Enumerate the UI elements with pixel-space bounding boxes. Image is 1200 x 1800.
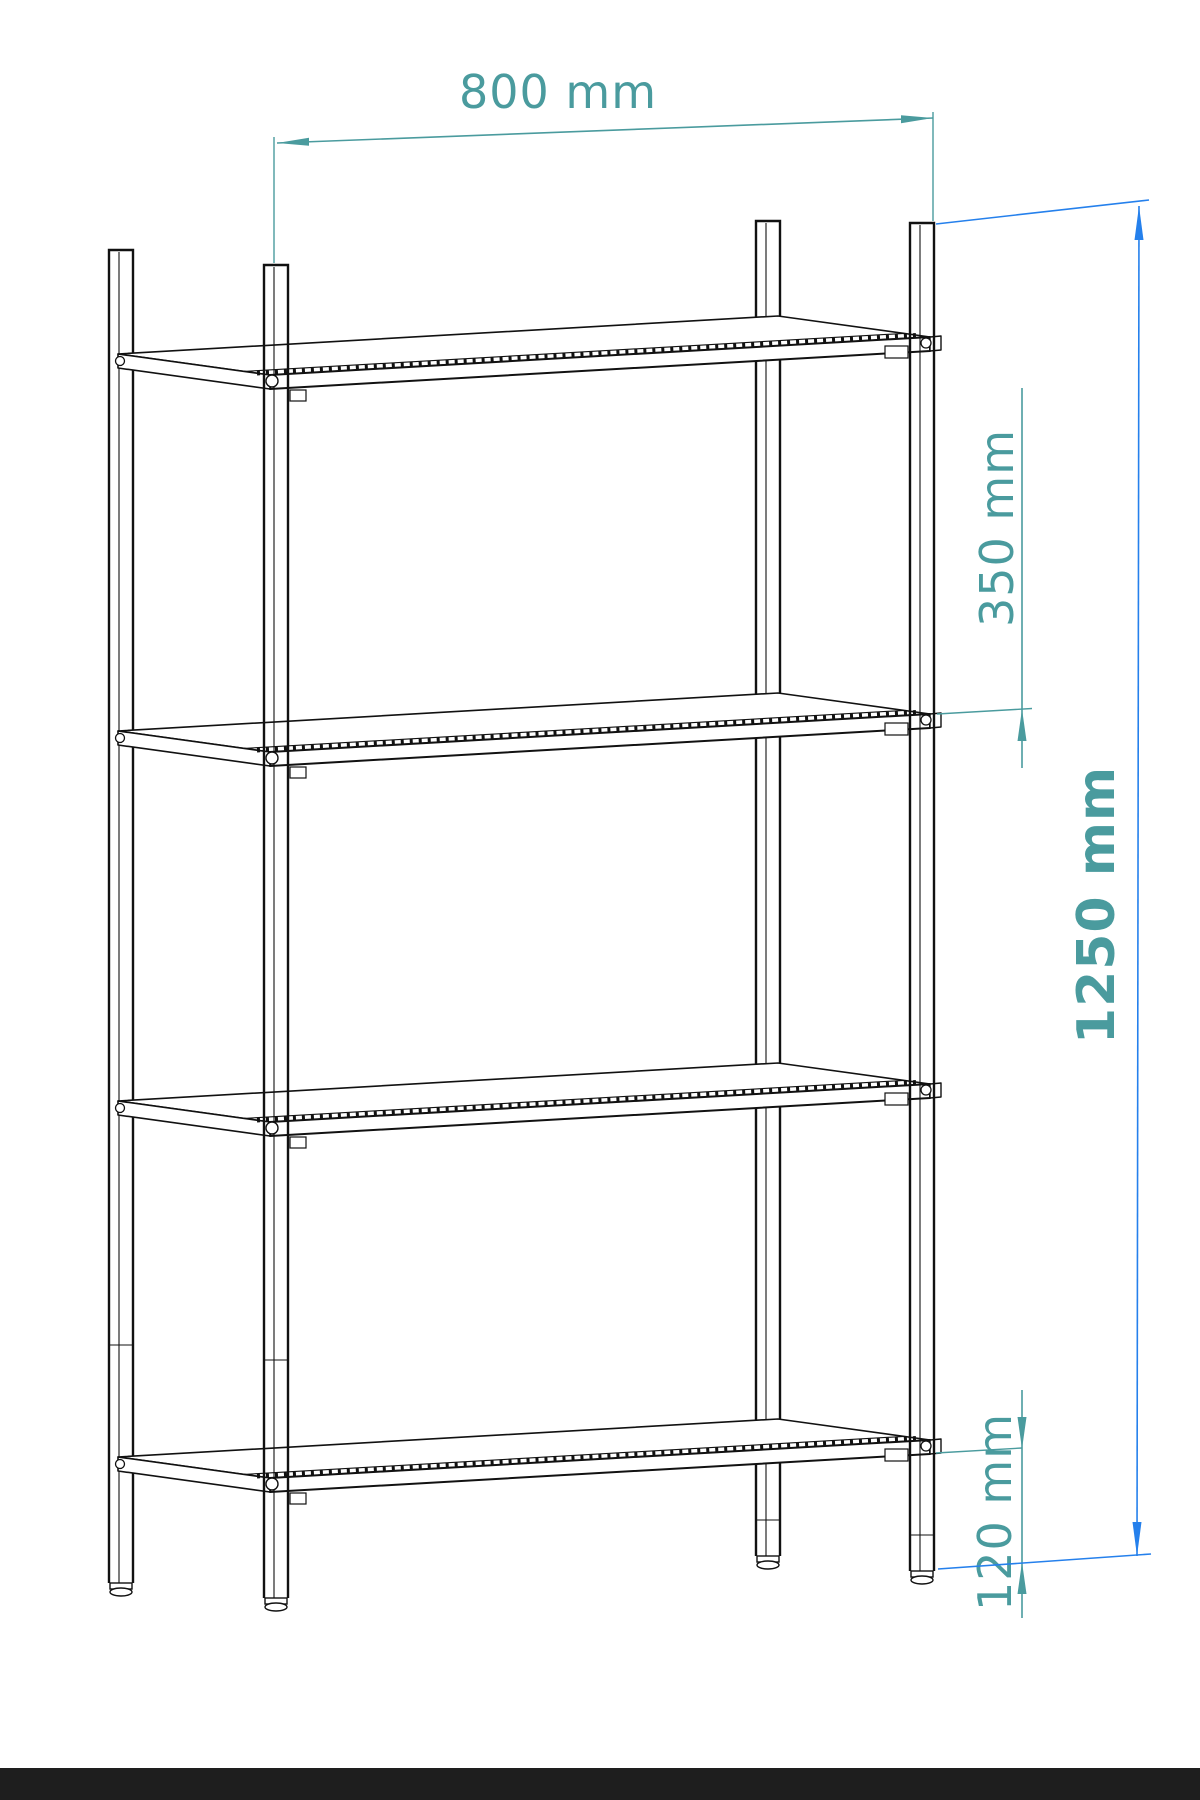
dim-height-label: 1250 mm	[1067, 766, 1127, 1044]
shelf-4	[118, 1419, 941, 1492]
bolt-icon	[266, 1122, 278, 1134]
shelf-2	[118, 693, 941, 766]
shelving-unit-drawing: 800 mm 350 mm 120 mm 1250 mm	[0, 0, 1200, 1800]
bolt-icon	[116, 734, 125, 743]
post-rear-right	[756, 221, 780, 1569]
foot	[757, 1561, 779, 1569]
arrow-down-icon	[1133, 1522, 1142, 1556]
dim-clearance-label: 120 mm	[968, 1413, 1022, 1611]
arrow-right-icon	[901, 115, 933, 123]
bolt-icon	[266, 375, 278, 387]
extension-line	[937, 709, 1032, 715]
dimension-line	[277, 118, 933, 143]
dimension-line	[1137, 206, 1139, 1556]
foot	[110, 1588, 132, 1596]
bolt-icon	[116, 1104, 125, 1113]
drawing-canvas: 800 mm 350 mm 120 mm 1250 mm	[0, 0, 1200, 1800]
foot	[911, 1576, 933, 1584]
dimension-overall-height: 1250 mm	[936, 200, 1151, 1569]
arrow-up-icon	[1018, 709, 1027, 741]
arrow-left-icon	[277, 138, 309, 146]
bolt-icon	[116, 1460, 125, 1469]
bolt-icon	[921, 1441, 931, 1451]
shelf-1	[118, 316, 941, 389]
extension-line	[936, 200, 1149, 224]
shelf-connectors	[116, 338, 932, 1504]
bolt-icon	[921, 1085, 931, 1095]
bolt-icon	[266, 1478, 278, 1490]
bolt-icon	[921, 715, 931, 725]
shelf-3	[118, 1063, 941, 1136]
dimension-bottom-clearance: 120 mm	[936, 1390, 1027, 1618]
dim-spacing-label: 350 mm	[970, 429, 1024, 627]
bolt-icon	[116, 357, 125, 366]
post-rear-left	[109, 250, 133, 1596]
bolt-icon	[266, 752, 278, 764]
dimension-width: 800 mm	[274, 65, 933, 263]
post-front-left	[264, 265, 288, 1611]
bolt-icon	[921, 338, 931, 348]
post-front-right	[910, 223, 934, 1584]
footer-bar	[0, 1768, 1200, 1800]
dim-width-label: 800 mm	[459, 65, 657, 119]
dimension-shelf-spacing: 350 mm	[937, 388, 1032, 768]
foot	[265, 1603, 287, 1611]
arrow-up-icon	[1135, 206, 1144, 240]
